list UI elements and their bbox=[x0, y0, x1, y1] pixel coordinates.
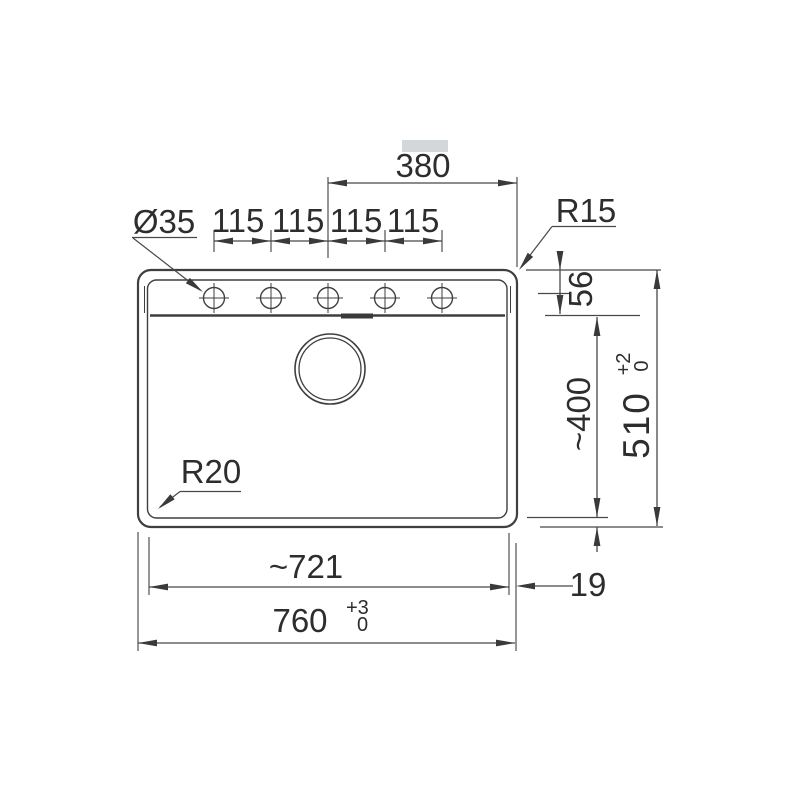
dim-380-label: 380 bbox=[395, 147, 450, 184]
sink-technical-drawing: 380 Ø35 115 115 115 115 R15 56 ~400 510 … bbox=[0, 0, 800, 800]
deck-offset-label: 56 bbox=[562, 271, 599, 308]
bowl-depth-label: ~400 bbox=[560, 377, 597, 451]
radius-top-label: R15 bbox=[556, 192, 617, 229]
hole-spacing-label-3: 115 bbox=[330, 202, 383, 239]
hole-spacing-label-4: 115 bbox=[387, 202, 440, 239]
hole-spacing-label-2: 115 bbox=[272, 202, 325, 239]
rim-width-label: 19 bbox=[570, 566, 607, 603]
overall-width-label: 760 bbox=[272, 602, 327, 639]
overall-depth-tol-minus: 0 bbox=[631, 360, 653, 371]
hole-spacing-label-1: 115 bbox=[212, 202, 265, 239]
overall-depth-label: 510 bbox=[616, 391, 657, 459]
drawing-background bbox=[0, 0, 800, 800]
overall-width-tol-minus: 0 bbox=[357, 614, 368, 636]
bowl-radius-label: R20 bbox=[181, 453, 242, 490]
technical-drawing-page: 380 Ø35 115 115 115 115 R15 56 ~400 510 … bbox=[0, 0, 800, 800]
overflow-slot bbox=[341, 314, 373, 319]
hole-diameter-label: Ø35 bbox=[133, 203, 195, 240]
bowl-width-label: ~721 bbox=[269, 548, 343, 585]
